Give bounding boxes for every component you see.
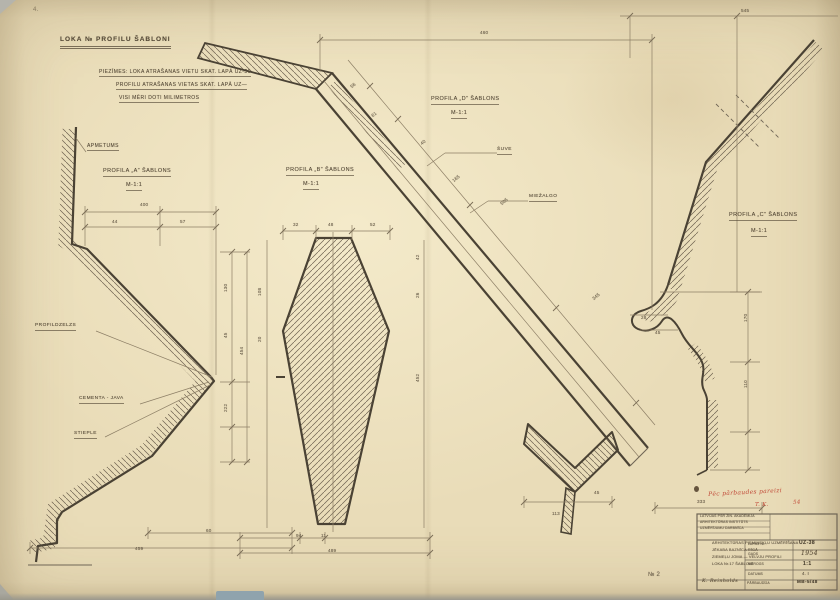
profile-a-scale: M-1:1 xyxy=(126,183,142,191)
sheet-bottom-edge xyxy=(0,593,840,600)
text-layer: LOKA № PROFILU ŠABLONIPIEZĪMES: LOKA ATR… xyxy=(0,0,840,600)
page-number: № 2 xyxy=(648,572,660,578)
profile-b-title: PROFILA „B” ŠABLONS xyxy=(286,168,354,176)
dim-45b: 45 xyxy=(594,491,600,496)
dim-345: 345 xyxy=(592,293,601,302)
callout-miezalgo: MIEŽALGO xyxy=(529,195,557,202)
dim-20: 20 xyxy=(258,336,263,342)
dim-40: 40 xyxy=(420,139,427,146)
profile-d-scale: M-1:1 xyxy=(451,111,467,119)
callout-stieple: STIEPLE xyxy=(74,432,97,439)
dim-32: 32 xyxy=(293,223,299,228)
profile-a-title: PROFILA „A” ŠABLONS xyxy=(103,169,171,177)
dim-45a: 45 xyxy=(224,332,229,338)
titleblock-signature: K. Reinholds xyxy=(702,580,738,585)
dim-454: 454 xyxy=(240,347,245,355)
row1-value: UZ-38 xyxy=(799,541,815,546)
dim-42: 42 xyxy=(416,254,421,260)
dim-505: 505 xyxy=(500,198,509,207)
dim-94: 94 xyxy=(296,534,302,539)
dim-11: 11 xyxy=(321,534,326,539)
dim-452: 452 xyxy=(416,374,421,382)
callout-cementa-java: CEMENTA - JAVA xyxy=(79,397,124,404)
titleblock-bottom-value: MB-5/48 xyxy=(797,580,818,585)
row1-label: LAPAS Nr. xyxy=(748,543,765,546)
note-3: VISI MĒRI DOTI MILIMETROS xyxy=(119,96,199,103)
dim-52: 52 xyxy=(370,223,376,228)
dim-222: 222 xyxy=(224,404,229,412)
row2-value: 1954 xyxy=(801,551,818,557)
profile-c-title: PROFILA „C” ŠABLONS xyxy=(729,213,797,221)
stamp-line-1: LATVIJAS PSR ZIN. AKADĒMIJA xyxy=(700,515,755,518)
callout-profildzelzs: PROFILDZELZS xyxy=(35,324,76,331)
sheet-title: LOKA № PROFILU ŠABLONI xyxy=(60,37,171,49)
dim-48: 48 xyxy=(328,223,334,228)
ink-speck xyxy=(694,486,699,492)
dim-108: 108 xyxy=(258,288,263,296)
stamp-line-3: UZMĒRĪJUMU DARBNĪCA xyxy=(700,527,744,530)
note-1: PIEZĪMES: LOKA ATRAŠANAS VIETU SKAT. LAP… xyxy=(99,70,251,77)
profile-d-title: PROFILA „D” ŠABLONS xyxy=(431,97,499,105)
note-2: PROFILU ATRAŠANAS VIETAS SKAT. LAPĀ UZ— xyxy=(116,83,247,90)
red-note-line1: Pēc pārbaudes pareizi xyxy=(708,488,782,498)
row2-label: GADS xyxy=(748,553,758,556)
callout-suve: ŠUVE xyxy=(497,148,512,155)
row4-value: 4. I xyxy=(802,572,809,577)
dim-460: 460 xyxy=(480,31,488,36)
red-note-date: 54 xyxy=(793,500,801,506)
dim-45c: 45 xyxy=(655,331,661,336)
dim-57: 57 xyxy=(180,220,186,225)
dim-489: 489 xyxy=(328,549,336,554)
dim-545: 545 xyxy=(741,9,749,14)
project-line-3: ZIEMEĻU JOMA — VELVJU PROFILI xyxy=(712,555,782,559)
dim-130: 130 xyxy=(224,284,229,292)
stamp-line-2: ARHITEKTŪRAS INSTITŪTS xyxy=(700,521,748,524)
dim-61: 61 xyxy=(371,111,378,118)
drawing-sheet: LOKA № PROFILU ŠABLONIPIEZĪMES: LOKA ATR… xyxy=(0,0,840,600)
dim-44: 44 xyxy=(112,220,118,225)
dim-26: 26 xyxy=(416,292,421,298)
titleblock-bottom-label: PĀRBAUDĪJA xyxy=(747,582,770,585)
dim-28: 28 xyxy=(641,316,647,321)
dim-459: 459 xyxy=(135,547,143,552)
dim-113: 113 xyxy=(552,512,560,517)
corner-mark: 4. xyxy=(33,7,39,13)
dim-110: 110 xyxy=(744,380,749,388)
row3-label: MĒROGS xyxy=(748,563,764,566)
profile-c-scale: M-1:1 xyxy=(751,229,767,237)
dim-60: 60 xyxy=(206,529,212,534)
dim-333: 333 xyxy=(697,500,705,505)
dim-170: 170 xyxy=(744,314,749,322)
callout-apmetums: APMETUMS xyxy=(87,144,119,151)
scanner-edge-patch xyxy=(216,591,264,600)
row3-value: 1:1 xyxy=(803,562,812,567)
dim-56: 56 xyxy=(350,82,357,89)
red-note-initials: T. K. xyxy=(755,503,769,509)
profile-b-scale: M-1:1 xyxy=(303,182,319,190)
dim-400: 400 xyxy=(140,203,148,208)
row4-label: DATUMS xyxy=(748,573,763,576)
dim-165: 165 xyxy=(452,175,461,184)
